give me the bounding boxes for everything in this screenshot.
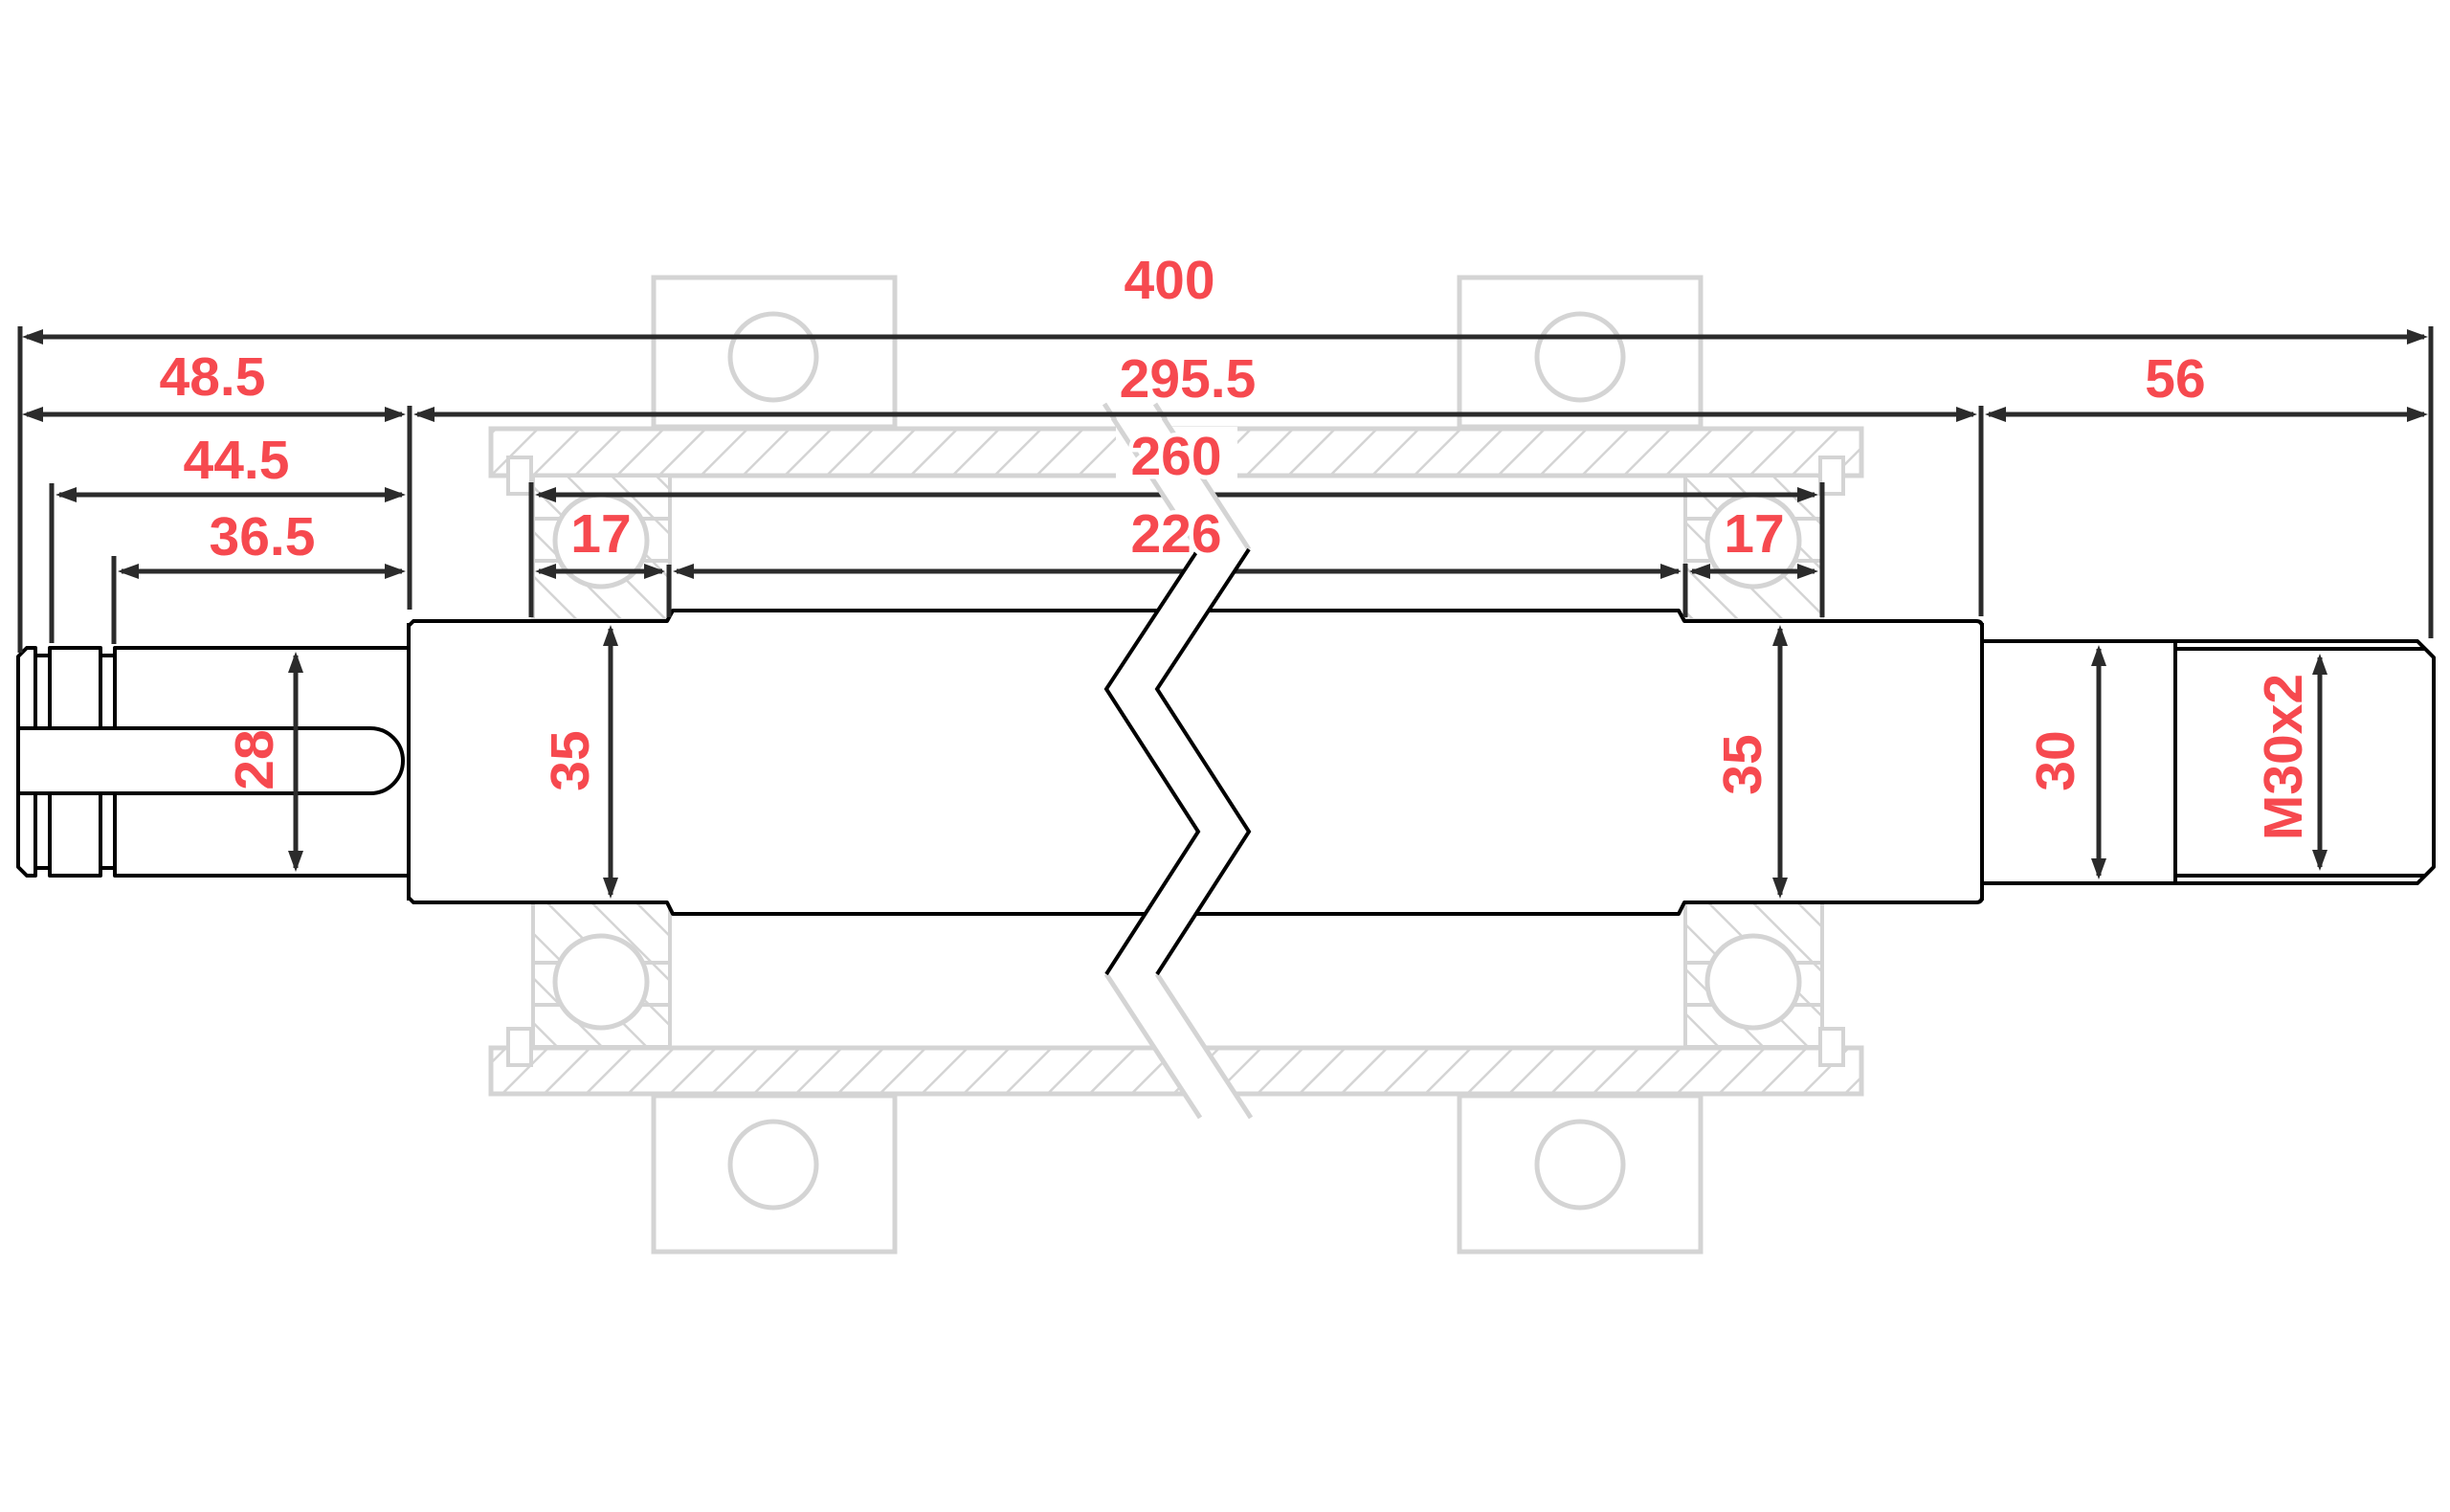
svg-text:28: 28 [224,729,285,789]
svg-text:35: 35 [1712,734,1773,794]
svg-text:226: 226 [1130,503,1221,565]
svg-text:260: 260 [1130,426,1221,487]
svg-text:44.5: 44.5 [184,430,290,491]
svg-text:17: 17 [570,503,631,565]
svg-text:56: 56 [2145,348,2205,410]
svg-text:35: 35 [540,730,601,790]
svg-text:30: 30 [2025,730,2086,790]
svg-text:400: 400 [1124,250,1214,311]
svg-text:295.5: 295.5 [1120,348,1257,410]
svg-text:36.5: 36.5 [210,506,316,567]
svg-text:M30x2: M30x2 [2253,674,2314,840]
svg-text:17: 17 [1724,503,1784,565]
svg-text:48.5: 48.5 [160,346,266,408]
